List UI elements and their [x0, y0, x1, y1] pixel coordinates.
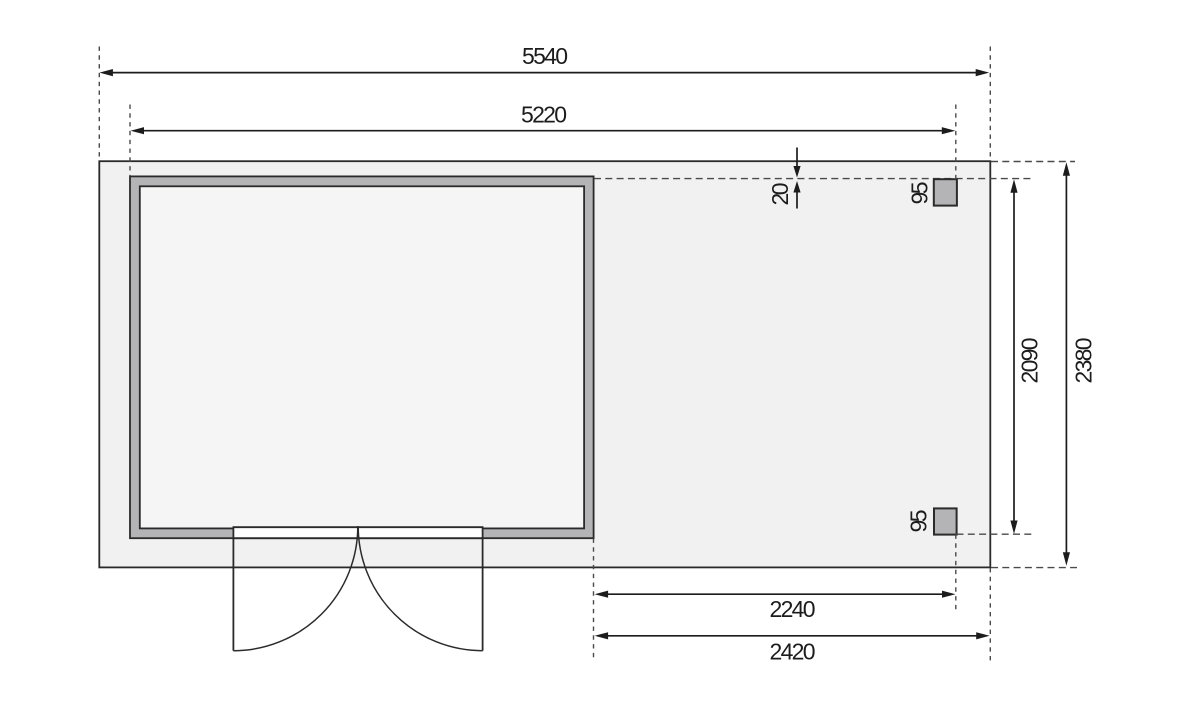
- svg-text:5220: 5220: [521, 101, 567, 127]
- svg-text:95: 95: [906, 510, 932, 533]
- svg-text:20: 20: [767, 183, 793, 206]
- svg-text:2420: 2420: [770, 639, 816, 665]
- svg-text:95: 95: [907, 182, 933, 205]
- svg-text:2240: 2240: [770, 596, 816, 622]
- svg-text:2090: 2090: [1017, 338, 1043, 384]
- svg-text:5540: 5540: [522, 43, 568, 69]
- svg-text:2380: 2380: [1071, 338, 1097, 384]
